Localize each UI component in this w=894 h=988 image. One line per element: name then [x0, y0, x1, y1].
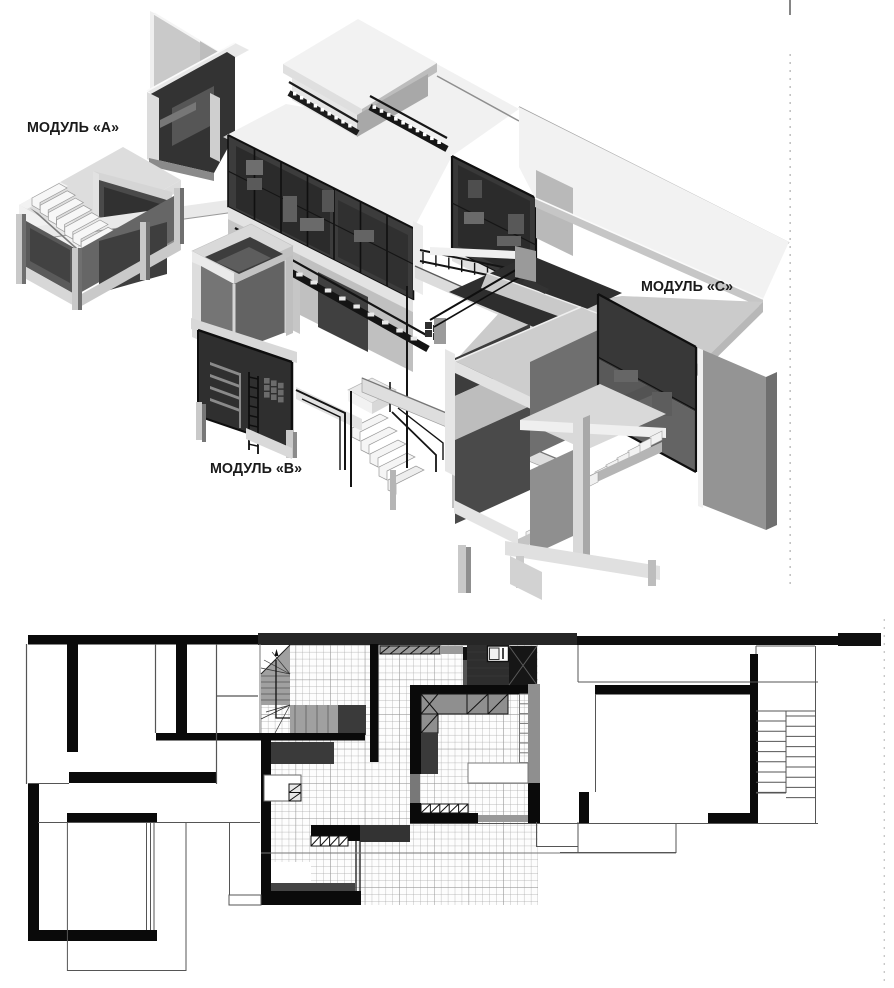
- svg-text:МОДУЛЬ «А»: МОДУЛЬ «А»: [27, 120, 119, 136]
- svg-text:МОДУЛЬ «С»: МОДУЛЬ «С»: [641, 279, 733, 295]
- svg-text:МОДУЛЬ «В»: МОДУЛЬ «В»: [210, 461, 302, 477]
